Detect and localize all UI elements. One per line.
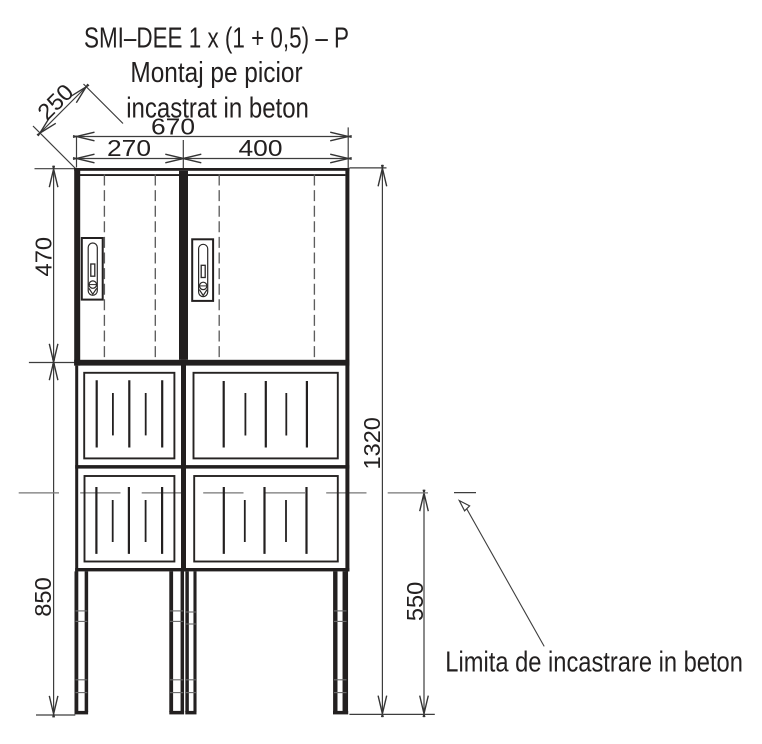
svg-text:SMI–DEE 1 x (1 + 0,5) – P: SMI–DEE 1 x (1 + 0,5) – P — [84, 23, 349, 55]
svg-text:270: 270 — [107, 135, 151, 161]
svg-text:470: 470 — [31, 237, 57, 277]
svg-text:Montaj pe picior: Montaj pe picior — [130, 57, 302, 89]
svg-text:400: 400 — [239, 135, 283, 161]
svg-text:550: 550 — [402, 582, 428, 622]
svg-text:Limita de incastrare in beton: Limita de incastrare in beton — [445, 647, 743, 679]
svg-text:670: 670 — [151, 113, 195, 139]
svg-text:1320: 1320 — [359, 417, 385, 469]
svg-text:850: 850 — [30, 577, 56, 617]
